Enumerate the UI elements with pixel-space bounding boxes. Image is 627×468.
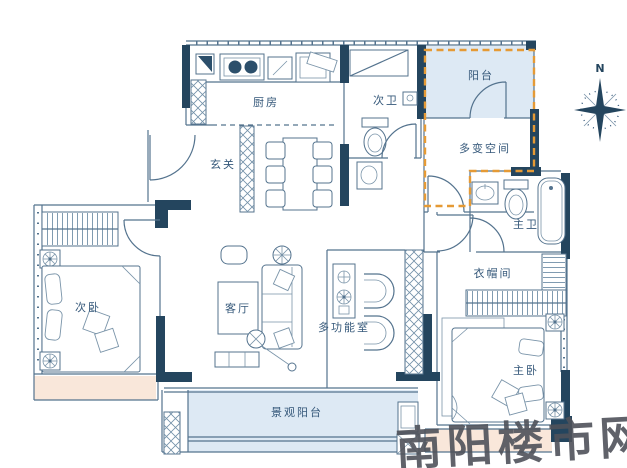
washbasin-icon: [472, 182, 498, 204]
room-label-second-bath: 次卫: [373, 93, 399, 107]
cloakroom-door: [437, 215, 473, 251]
shower-icon: [350, 50, 408, 76]
bathtub-icon: [538, 178, 565, 244]
wardrobe: [542, 254, 566, 290]
side-table: [221, 246, 247, 264]
compass: N: [574, 62, 626, 142]
cutting-board-icon: [268, 57, 292, 79]
kitchen-fixtures: [196, 52, 337, 82]
equipment-rack: [333, 264, 355, 318]
second-bedroom-door: [124, 220, 160, 256]
chair-icon: [364, 274, 394, 308]
room-label-master-bedroom: 主卧: [513, 364, 539, 377]
second-bedroom-furniture: [40, 212, 140, 372]
master-bedroom-furniture: [442, 314, 564, 424]
room-label-kitchen: 厨房: [253, 96, 279, 109]
floor-plan-svg: N 厨房 次卫 阳台 多变空间 玄关 主卫 次卧 客厅 多功能室 衣帽间 主卧 …: [0, 0, 627, 468]
dining-set: [266, 138, 332, 210]
view-balcony-floor: [188, 390, 418, 452]
cloakroom-wardrobes: [466, 254, 566, 316]
vanity-basin-icon: [357, 162, 382, 189]
toilet-icon: [362, 118, 388, 156]
tv-cabinet: [215, 352, 259, 367]
column: [164, 412, 180, 454]
room-label-second-bedroom: 次卧: [75, 300, 101, 314]
master-bath-door: [470, 218, 504, 252]
nightstand: [40, 352, 60, 370]
washbasin-icon: [403, 92, 417, 105]
balcony-floor: [424, 46, 534, 118]
room-label-flex-space: 多变空间: [459, 141, 511, 155]
wardrobe: [42, 212, 118, 246]
site-watermark: 南阳楼市网: [394, 409, 627, 468]
wardrobe: [466, 290, 566, 316]
room-label-view-balcony: 景观阳台: [271, 405, 323, 419]
toilet-icon: [504, 180, 528, 219]
second-bath-door: [382, 124, 416, 158]
room-label-foyer: 玄关: [210, 157, 236, 171]
bay-window-left: [34, 376, 156, 400]
floor-plan-page: N 厨房 次卫 阳台 多变空间 玄关 主卫 次卧 客厅 多功能室 衣帽间 主卧 …: [0, 0, 627, 468]
sofa: [262, 265, 302, 349]
compass-north-label: N: [595, 62, 604, 75]
compass-rose-icon: [574, 78, 626, 142]
column: [240, 126, 254, 212]
stove-icon: [220, 54, 264, 80]
room-label-living-room: 客厅: [225, 301, 251, 315]
column: [191, 80, 206, 124]
plant-icon: [273, 246, 291, 264]
master-bath-fixtures: [472, 178, 565, 244]
column: [405, 250, 423, 374]
room-label-balcony: 阳台: [468, 68, 494, 82]
nightstand: [40, 250, 60, 268]
room-label-master-bath: 主卫: [513, 218, 539, 231]
dining-table: [283, 138, 317, 210]
entry-door: [150, 135, 195, 180]
nightstand: [546, 314, 564, 331]
room-label-cloakroom: 衣帽间: [474, 266, 513, 280]
room-label-multi-room: 多功能室: [318, 320, 370, 334]
second-bath-fixtures: [350, 50, 417, 189]
multi-room-furniture: [333, 264, 394, 350]
